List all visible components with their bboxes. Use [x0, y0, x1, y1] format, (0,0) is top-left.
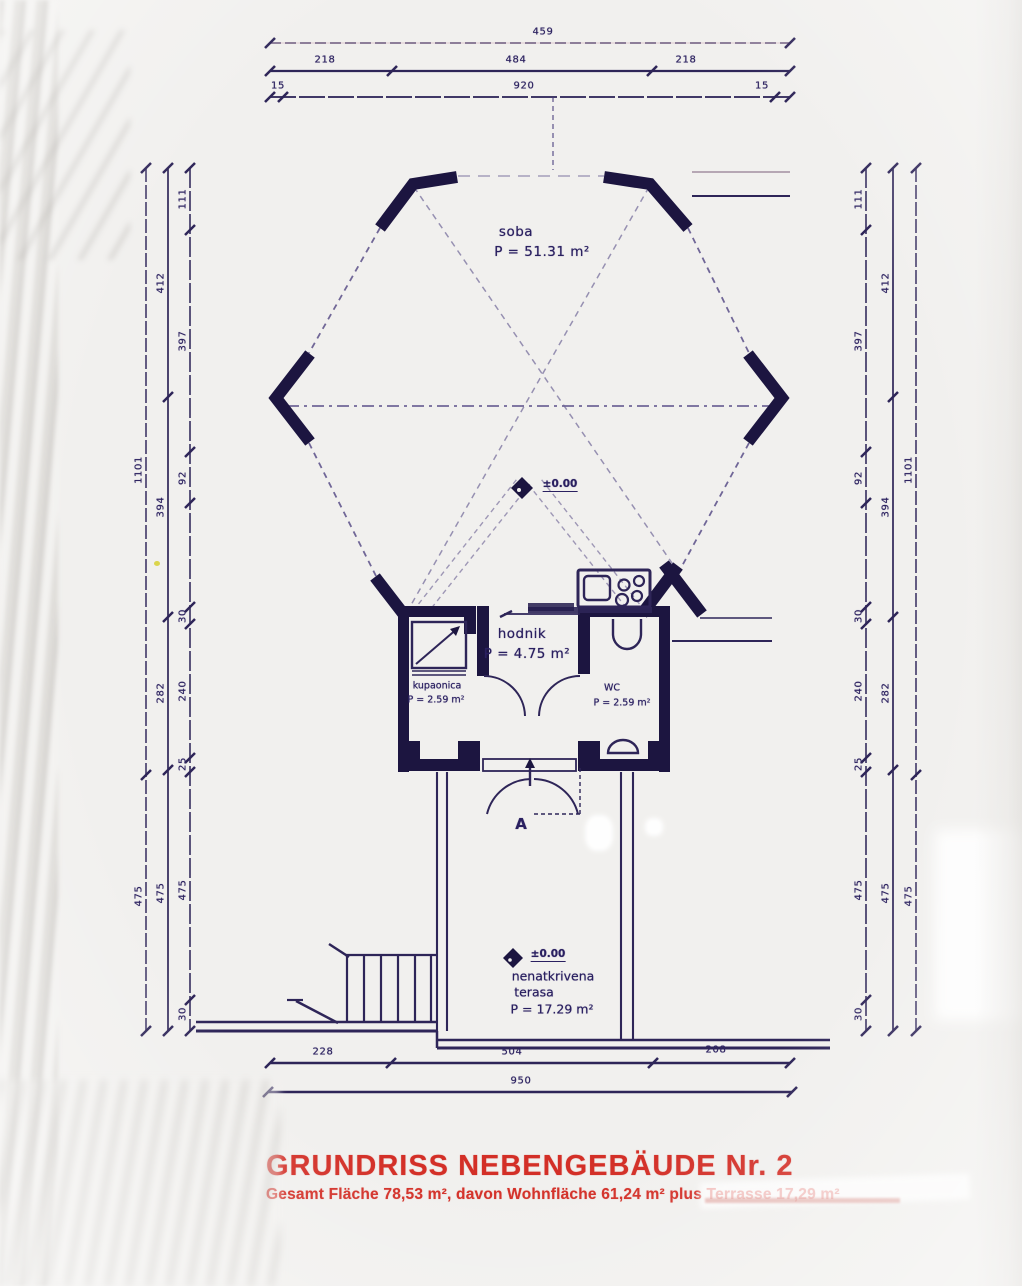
shower [412, 622, 466, 675]
dim-top-offset-right: 15 [755, 81, 769, 92]
scanned-floorplan-page: soba P = 51.31 m² hodnik P = 4.75 m² kup… [0, 0, 1022, 1286]
room-area-hodnik: P = 4.75 m² [484, 646, 570, 662]
drawing-subtitle: Gesamt Fläche 78,53 m², davon Wohnfläche… [266, 1186, 840, 1204]
ground-lines [196, 1022, 830, 1048]
dim-right-outer-1: 1101 [904, 456, 915, 484]
dim-right-outer-2: 475 [904, 886, 915, 907]
dim-left-inner-3: 92 [178, 471, 189, 485]
dim-bottom-left: 228 [313, 1047, 334, 1058]
terrace-walls [437, 772, 633, 1040]
terrace-area: P = 17.29 m² [511, 1002, 594, 1017]
stairs [287, 944, 437, 1023]
dim-right-middle-2: 394 [881, 497, 892, 518]
dim-right-inner-8: 30 [854, 1007, 865, 1021]
dim-top-left: 218 [315, 55, 336, 66]
dim-top-offset-left: 15 [271, 81, 285, 92]
room-label-kupaonica: kupaonica [413, 681, 462, 692]
dim-left-middle-3: 282 [156, 683, 167, 704]
door-label-a: A [515, 815, 527, 833]
level-marker-icon [511, 477, 533, 499]
dim-left-inner-4: 30 [178, 609, 189, 623]
interior-doors [484, 676, 580, 716]
dim-left-middle-2: 394 [156, 497, 167, 518]
roof-projection-dashed-lines [279, 97, 779, 615]
level-main: ±0.00 [543, 478, 578, 492]
dim-bottom-total: 950 [511, 1076, 532, 1087]
terrace-level-marker-icon [503, 948, 523, 968]
dim-bottom-right: 208 [706, 1045, 727, 1056]
top-dimension-lines [265, 38, 795, 102]
dim-top-width: 920 [514, 81, 535, 92]
kitchen-counter [500, 570, 652, 617]
dim-bottom-center: 504 [502, 1047, 523, 1058]
dim-top-right: 218 [676, 55, 697, 66]
dim-right-inner-5: 240 [854, 681, 865, 702]
dim-left-outer-2: 475 [134, 886, 145, 907]
drawing-title: GRUNDRISS NEBENGEBÄUDE Nr. 2 [266, 1150, 794, 1183]
dim-right-inner-6: 25 [854, 757, 865, 771]
dim-left-inner-8: 30 [178, 1007, 189, 1021]
room-label-soba: soba [499, 224, 533, 240]
dim-left-middle-1: 412 [156, 273, 167, 294]
level-terrace: ±0.00 [531, 948, 566, 962]
floor-plan-svg [0, 0, 1022, 1286]
room-label-hodnik: hodnik [498, 626, 547, 642]
terrace-label-2: terasa [514, 985, 554, 1000]
dim-right-middle-4: 475 [881, 883, 892, 904]
dim-right-inner-4: 30 [854, 609, 865, 623]
dim-top-total-hex: 459 [533, 27, 554, 38]
dim-left-middle-4: 475 [156, 883, 167, 904]
terrace-label-1: nenatkrivena [512, 969, 595, 984]
dim-right-inner-7: 475 [854, 880, 865, 901]
room-label-wc: WC [604, 683, 620, 694]
dim-right-inner-1: 111 [854, 189, 865, 210]
room-area-soba: P = 51.31 m² [494, 244, 590, 260]
left-dimension-chains [141, 163, 195, 1036]
dim-left-inner-2: 397 [178, 331, 189, 352]
room-area-wc: P = 2.59 m² [594, 698, 651, 709]
dim-left-inner-7: 475 [178, 880, 189, 901]
dim-left-inner-6: 25 [178, 757, 189, 771]
dim-right-inner-2: 397 [854, 331, 865, 352]
room-area-kupaonica: P = 2.59 m² [408, 695, 465, 706]
dim-right-middle-1: 412 [881, 273, 892, 294]
dim-left-inner-5: 240 [178, 681, 189, 702]
dim-right-middle-3: 282 [881, 683, 892, 704]
dim-left-outer-1: 1101 [134, 456, 145, 484]
hexagon-walls [276, 177, 782, 616]
dim-right-inner-3: 92 [854, 471, 865, 485]
dim-top-center: 484 [506, 55, 527, 66]
dim-left-inner-1: 111 [178, 189, 189, 210]
